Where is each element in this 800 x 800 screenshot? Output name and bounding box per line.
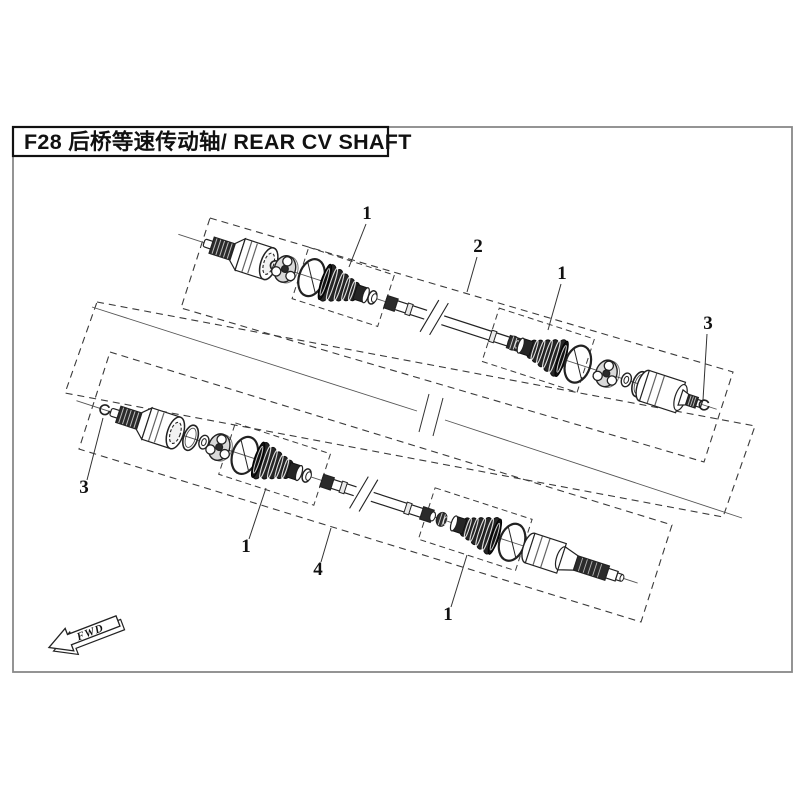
cv-joint-housing (633, 368, 707, 419)
tripod-bearing (591, 357, 623, 390)
callout-number: 2 (473, 236, 483, 257)
parts-catalog-page: 1 2 1 3 3 1 4 1 FWD F28 后桥等速传动轴/ REAR CV… (0, 0, 800, 800)
fwd-arrow: FWD (45, 609, 127, 664)
page-title: F28 后桥等速传动轴/ REAR CV SHAFT (24, 129, 412, 154)
callout-number: 1 (241, 536, 251, 557)
phantom-centerline (92, 307, 742, 518)
upper-cv-shaft-assembly (170, 207, 726, 435)
callout-number: 1 (443, 604, 453, 625)
drive-shaft (320, 474, 437, 523)
cv-boot (512, 327, 571, 379)
callout-leaders (87, 224, 707, 607)
callout-number: 3 (79, 477, 89, 498)
lower-assembly-dashed-box (79, 352, 672, 622)
callout-number: 3 (703, 313, 713, 334)
cv-boot (446, 504, 505, 556)
washer (620, 372, 633, 388)
cv-shaft-exploded-diagram: 1 2 1 3 3 1 4 1 FWD F28 后桥等速传动轴/ REAR CV… (0, 0, 800, 800)
boot-clamp (435, 511, 450, 528)
middle-phantom-dashed-box (65, 302, 755, 517)
cv-joint-housing (106, 396, 188, 451)
callout-number: 1 (362, 203, 372, 224)
cv-joint-housing (519, 531, 629, 593)
callout-number: 1 (557, 263, 567, 284)
callout-number: 4 (313, 559, 323, 580)
